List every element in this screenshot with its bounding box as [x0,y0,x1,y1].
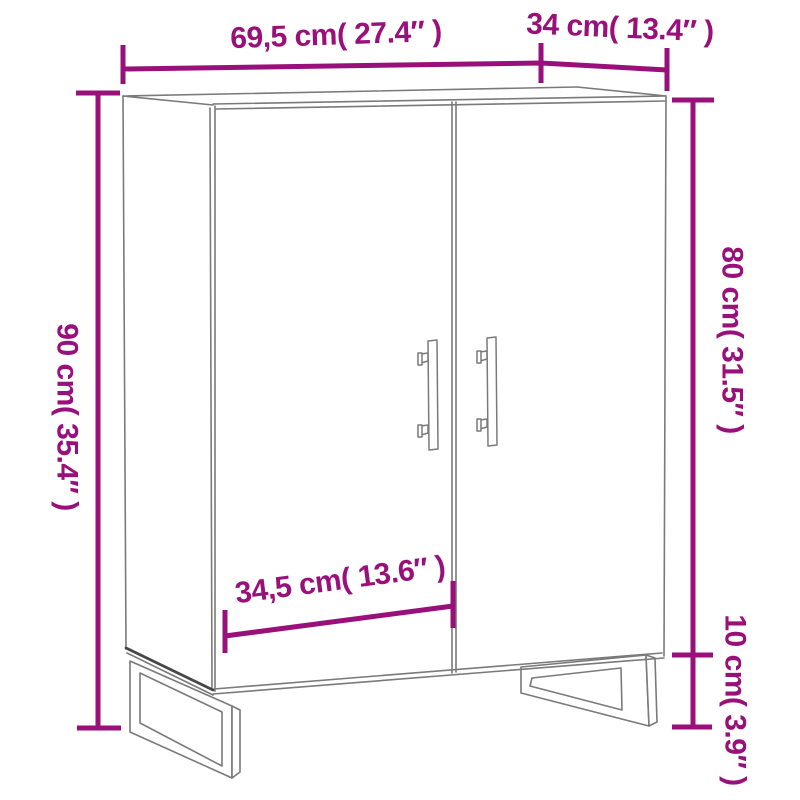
right-handle-bar [487,337,497,446]
left-handle-bar [428,340,438,450]
left-handle-bottom-pad [418,425,422,437]
cabinet-body [123,87,666,692]
dimension-diagram: 69,5 cm( 27.4″ ) 34 cm( 13.4″ ) 90 cm( 3… [0,0,800,800]
diagram-canvas: 69,5 cm( 27.4″ ) 34 cm( 13.4″ ) 90 cm( 3… [0,0,800,800]
width-dimension-label: 69,5 cm( 27.4″ ) [230,15,443,55]
left-leg-side-face [232,706,240,778]
left-handle-top-pad [418,353,422,365]
body-height-dimension-label: 80 cm( 31.5″ ) [716,246,749,433]
right-handle-top-pad [477,351,481,363]
leg-height-dimension-label: 10 cm( 3.9″ ) [719,614,752,785]
depth-dimension-label: 34 cm( 13.4″ ) [526,7,715,48]
right-handle-bottom-pad [477,419,481,431]
top-dimension-line [123,63,667,70]
height-dimension-label: 90 cm( 35.4″ ) [51,323,84,510]
